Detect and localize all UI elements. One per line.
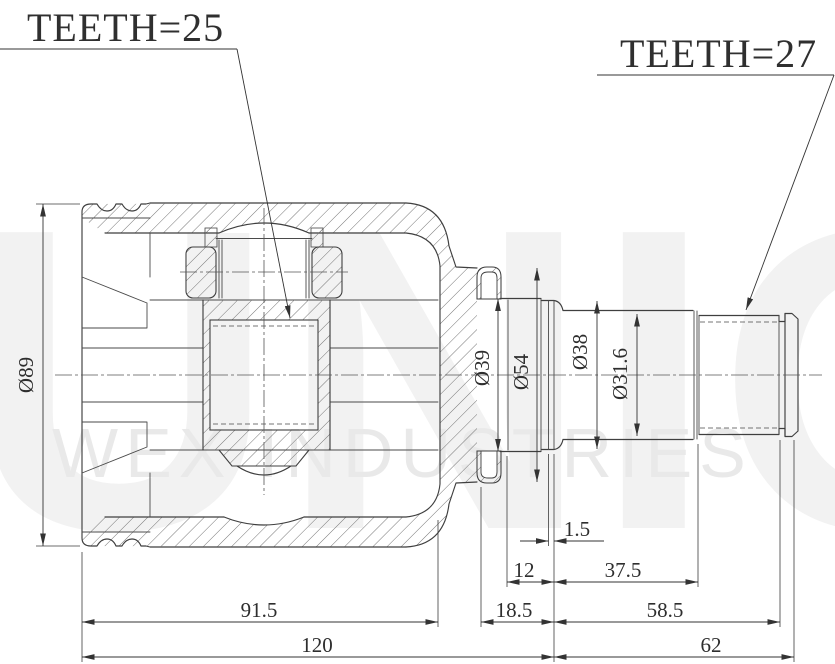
- dim-58-5-label: 58.5: [647, 598, 684, 622]
- cage-end-left: [205, 228, 217, 247]
- dim-37-5-label: 37.5: [605, 558, 642, 582]
- dim-12-label: 12: [514, 558, 535, 582]
- teeth-right-label: TEETH=27: [620, 31, 817, 76]
- dim-d39-label: Ø39: [470, 350, 494, 386]
- watermark-sub-text: WEX INDUSTRIES: [52, 414, 753, 492]
- dim-62-label: 62: [701, 633, 722, 657]
- cage-end-right: [311, 228, 323, 247]
- dim-91-5-label: 91.5: [241, 598, 278, 622]
- dim-120-label: 120: [301, 633, 333, 657]
- dim-1-5-label: 1.5: [564, 517, 590, 541]
- cv-joint-technical-drawing: UNIO WEX INDUSTRIES: [0, 0, 835, 664]
- roller-left: [186, 247, 216, 298]
- teeth-left-label: TEETH=25: [27, 5, 224, 50]
- dim-d89-label: Ø89: [14, 357, 38, 393]
- dim-d38-label: Ø38: [568, 334, 592, 370]
- drawing-canvas: UNIO WEX INDUSTRIES: [0, 0, 835, 664]
- dim-d31-6-label: Ø31.6: [608, 348, 632, 400]
- roller-right: [312, 247, 342, 298]
- dim-18-5-label: 18.5: [496, 598, 533, 622]
- dim-d54-label: Ø54: [509, 353, 533, 390]
